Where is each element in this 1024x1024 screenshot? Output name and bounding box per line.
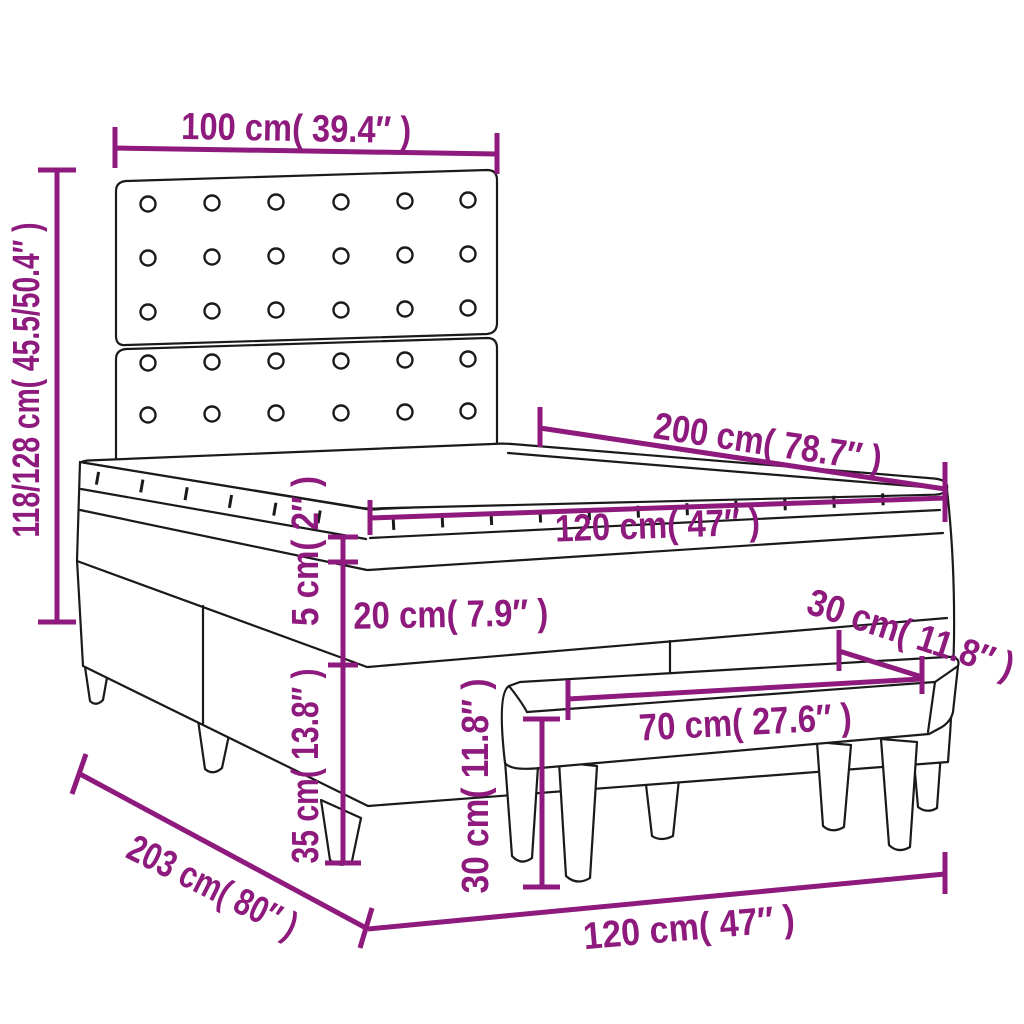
headboard-lower-panel [116,338,497,462]
headboard [116,170,497,462]
dimension-label-topper-thickness: 5 cm( 2″ ) [285,476,327,626]
bed-dimension-diagram: 100 cm( 39.4″ ) 118/128 cm( 45.5/50.4″ )… [0,0,1024,1024]
dimension-label-mattress-width: 120 cm( 47″ ) [554,501,760,550]
dimension-headboard-width: 100 cm( 39.4″ ) [115,106,497,174]
dimension-label-base-leg-height: 35 cm( 13.8″ ) [285,669,327,864]
diagram-canvas: 100 cm( 39.4″ ) 118/128 cm( 45.5/50.4″ )… [0,0,1024,1024]
headboard-upper-panel [116,170,497,345]
dimension-label-mattress-height: 20 cm( 7.9″ ) [353,592,549,637]
bench-leg [559,762,597,882]
dimension-total-height: 118/128 cm( 45.5/50.4″ ) [6,170,76,622]
dimension-label-headboard-width: 100 cm( 39.4″ ) [181,106,412,152]
dimension-label-total-height: 118/128 cm( 45.5/50.4″ ) [6,223,48,538]
bench-leg [881,739,917,850]
bench-leg [817,742,851,830]
dimension-label-bench-height: 30 cm( 11.8″ ) [455,679,497,894]
